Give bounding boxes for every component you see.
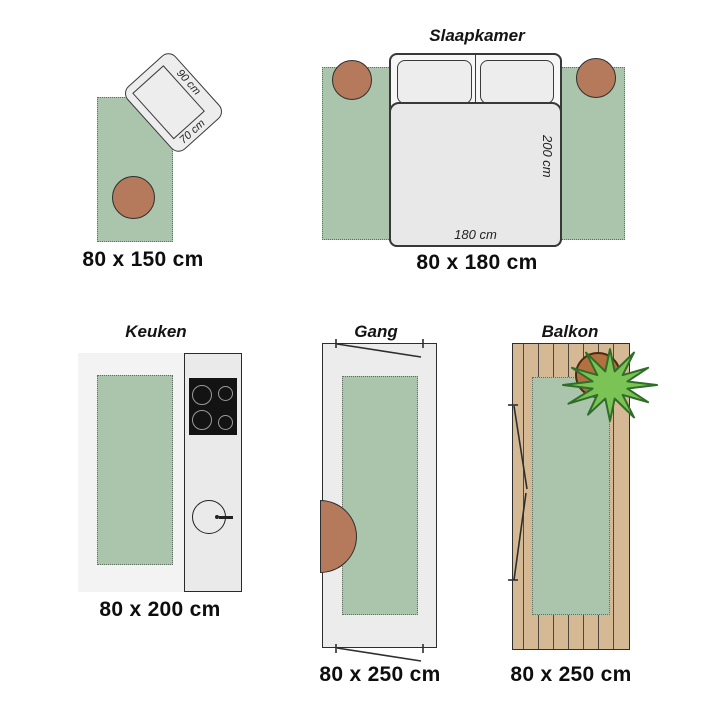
pillow-left xyxy=(397,60,472,104)
pouf-round xyxy=(112,176,155,219)
pouf-right xyxy=(576,58,616,98)
caption-80x250-balcony: 80 x 250 cm xyxy=(486,664,656,686)
hall-top-door-icon xyxy=(325,335,437,365)
pouf-left xyxy=(332,60,372,100)
balcony-door-icon xyxy=(505,398,535,588)
bed-length-label: 200 cm xyxy=(540,135,555,178)
faucet-icon xyxy=(219,516,233,519)
rug-80x200 xyxy=(97,375,173,565)
bed: 200 cm 180 cm xyxy=(389,53,562,247)
caption-80x180: 80 x 180 cm xyxy=(392,252,562,274)
burner-large-top-icon xyxy=(192,385,212,405)
title-balcony: Balkon xyxy=(490,323,650,341)
bed-width-label: 180 cm xyxy=(391,227,560,242)
duvet xyxy=(389,102,562,247)
rug-80x250-hall xyxy=(342,376,418,615)
caption-80x200: 80 x 200 cm xyxy=(75,599,245,621)
title-kitchen: Keuken xyxy=(76,323,236,341)
pillow-right xyxy=(480,60,554,104)
title-bedroom: Slaapkamer xyxy=(397,27,557,45)
caption-80x150: 80 x 150 cm xyxy=(58,249,228,271)
bed-crease-line xyxy=(475,55,477,104)
burner-small-bottom-icon xyxy=(218,415,233,430)
burner-small-top-icon xyxy=(218,386,233,401)
caption-80x250-hall: 80 x 250 cm xyxy=(295,664,465,686)
kitchen-counter xyxy=(184,353,242,592)
plant-icon xyxy=(560,345,660,425)
cooktop xyxy=(189,378,237,435)
rug-size-guide: 90 cm 70 cm 80 x 150 cm Slaapkamer 200 c… xyxy=(0,0,720,720)
burner-large-bottom-icon xyxy=(192,410,212,430)
